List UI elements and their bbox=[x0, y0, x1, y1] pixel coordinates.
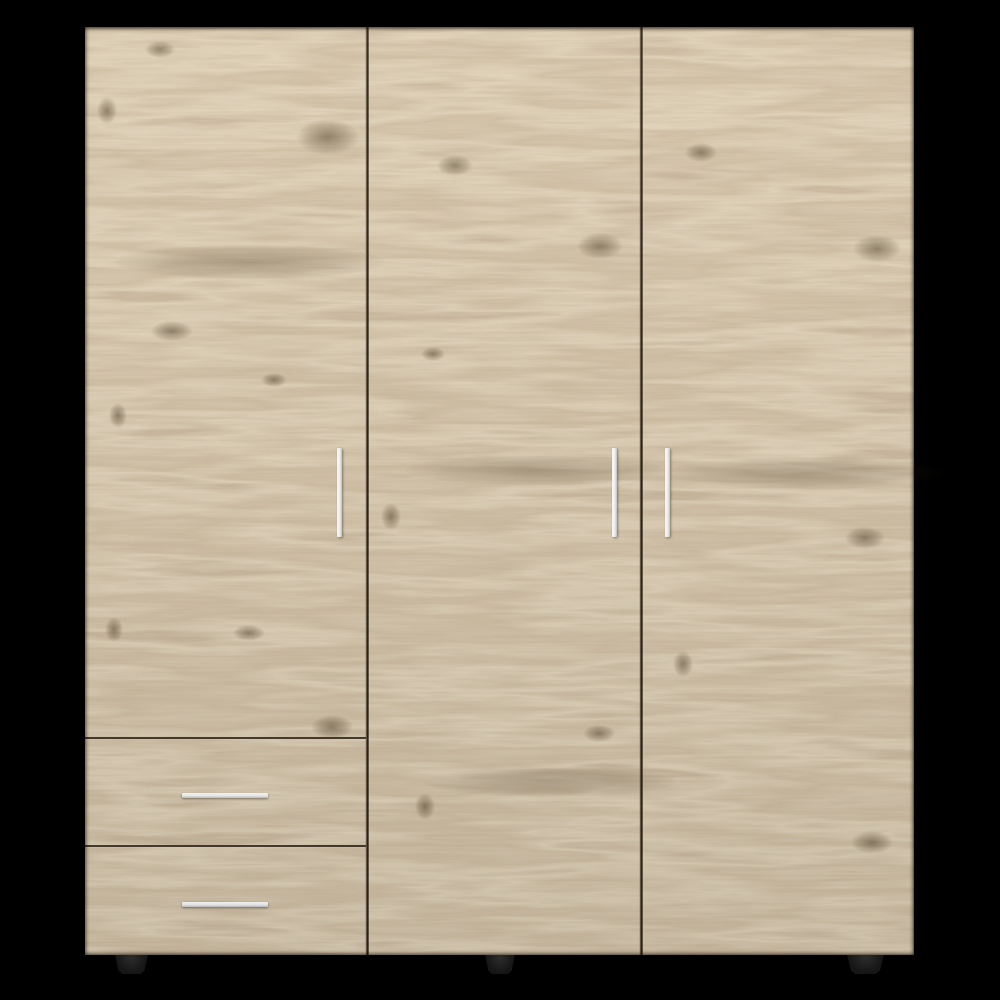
left-door-handle bbox=[337, 448, 342, 537]
drawer-bottom-handle bbox=[182, 902, 268, 907]
product-photo bbox=[0, 0, 1000, 1000]
foot-right bbox=[847, 955, 884, 974]
wardrobe bbox=[85, 27, 914, 955]
drawer-top bbox=[85, 739, 366, 845]
left-door bbox=[85, 27, 366, 737]
middle-door-handle bbox=[612, 448, 617, 537]
middle-door bbox=[369, 27, 640, 955]
drawer-bottom bbox=[85, 847, 366, 955]
wardrobe-front bbox=[85, 27, 914, 955]
drawer-top-handle bbox=[182, 793, 268, 798]
right-door bbox=[643, 27, 914, 955]
foot-middle bbox=[485, 955, 515, 974]
foot-left bbox=[115, 955, 148, 974]
right-door-handle bbox=[665, 448, 670, 537]
left-section bbox=[85, 27, 366, 955]
